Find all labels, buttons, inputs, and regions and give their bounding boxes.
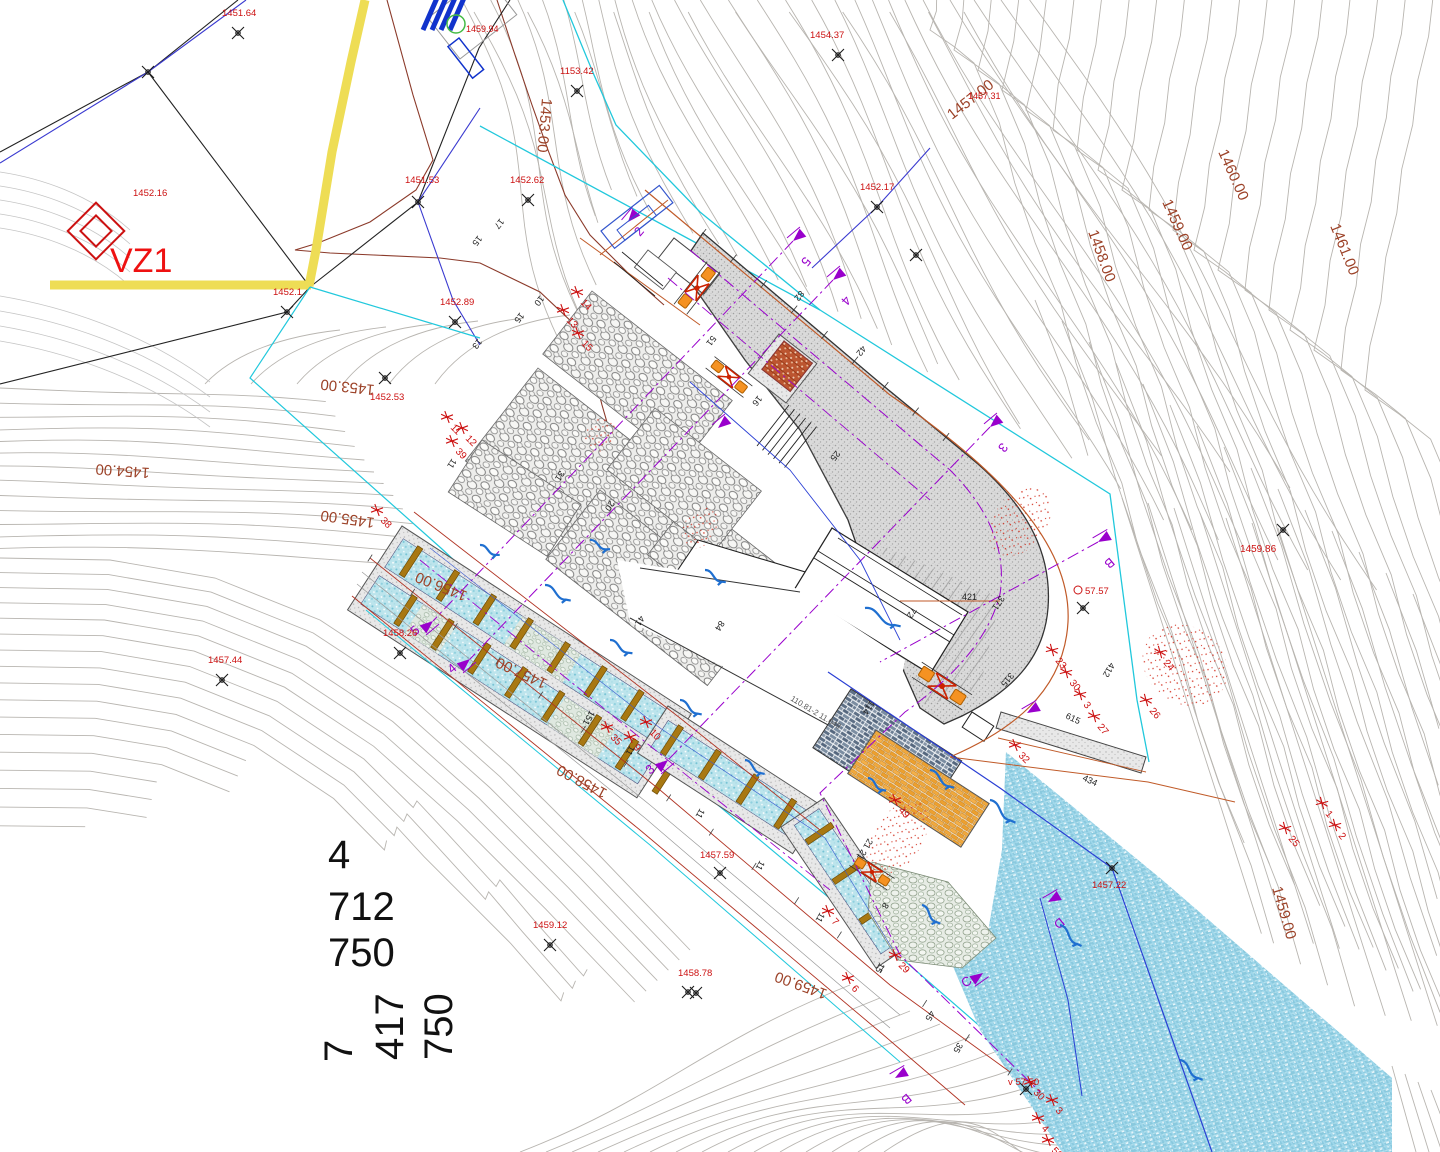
svg-text:1153.42: 1153.42 (560, 66, 594, 77)
svg-text:7: 7 (317, 1040, 361, 1062)
svg-text:57.57: 57.57 (1085, 586, 1109, 597)
svg-text:VZ1: VZ1 (110, 242, 172, 280)
svg-text:750: 750 (417, 993, 461, 1060)
svg-text:4: 4 (328, 833, 350, 877)
svg-text:1451.64: 1451.64 (222, 8, 256, 19)
svg-text:1452.53: 1452.53 (370, 392, 404, 403)
svg-text:417: 417 (368, 993, 412, 1060)
svg-text:1457.31: 1457.31 (968, 91, 1001, 101)
svg-text:1452.17: 1452.17 (860, 182, 894, 193)
svg-text:v 57 50: v 57 50 (1008, 1077, 1039, 1088)
svg-text:1458.26: 1458.26 (383, 628, 417, 639)
svg-text:1459.94: 1459.94 (466, 24, 499, 34)
svg-text:712: 712 (328, 885, 395, 929)
svg-text:1452.89: 1452.89 (440, 297, 474, 308)
svg-text:1459.12: 1459.12 (533, 920, 567, 931)
svg-text:1452.16: 1452.16 (133, 188, 167, 199)
svg-text:750: 750 (328, 931, 395, 975)
svg-text:1457.44: 1457.44 (208, 655, 242, 666)
svg-text:1454.37: 1454.37 (810, 30, 844, 41)
svg-text:1451.53: 1451.53 (405, 175, 439, 186)
svg-text:1458.78: 1458.78 (678, 968, 712, 979)
svg-text:1452.1: 1452.1 (273, 287, 302, 298)
svg-text:1457.22: 1457.22 (1092, 880, 1126, 891)
svg-text:1459.86: 1459.86 (1240, 544, 1277, 555)
svg-text:1452.62: 1452.62 (510, 175, 544, 186)
svg-text:1457.59: 1457.59 (700, 850, 734, 861)
svg-text:421: 421 (962, 592, 977, 602)
